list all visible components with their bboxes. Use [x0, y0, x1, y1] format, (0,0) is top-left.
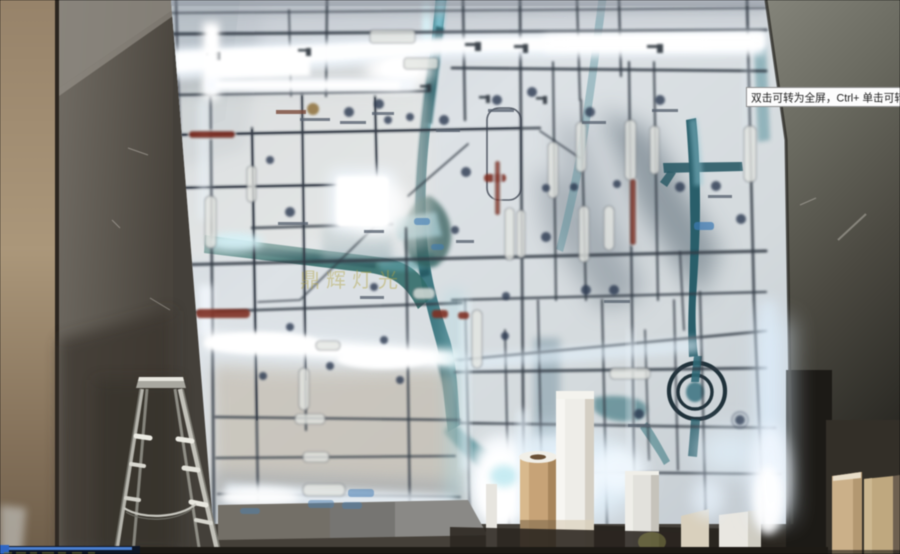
svg-text:双击可转为全屏，Ctrl+ 单击可转为: 双击可转为全屏，Ctrl+ 单击可转为 [751, 92, 900, 105]
svg-text:鼎辉灯光: 鼎辉灯光 [300, 269, 404, 292]
